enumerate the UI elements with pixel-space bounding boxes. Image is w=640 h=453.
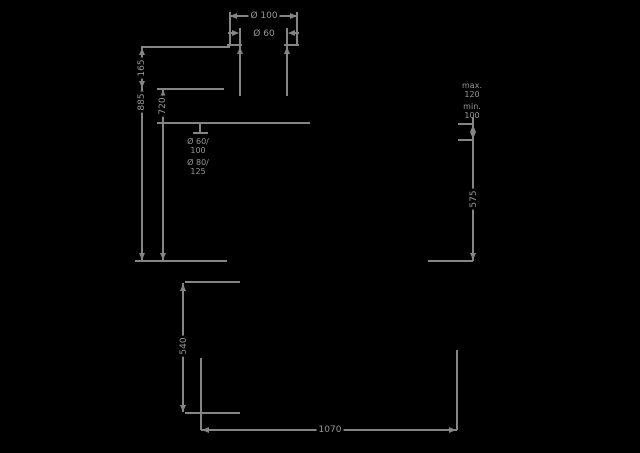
leader-bar-connection [193,132,208,134]
connection-label-line1: Ø 60/ [187,137,209,146]
arrow-left-icon [288,30,295,36]
connection-label-line2: 100 [187,146,209,155]
total-height-label: 885 [137,91,147,112]
arrow-right-icon [290,13,297,19]
width-label: 1070 [317,425,344,435]
ref-line-flue-top [141,46,230,48]
right-note-line2: 120 [462,90,482,99]
arrow-up-icon [180,284,186,291]
ref-line-body-top [157,88,224,90]
flue-inner-dim-tail-right [295,32,299,34]
flue-pipe-left [239,28,241,96]
clearance-label: 540 [179,335,189,356]
ext-line-width-left [200,358,202,430]
ext-line-clearance-top [185,281,240,283]
right-range-note: max. 120 min. 100 [462,81,482,120]
right-note-line3: min. [462,102,482,111]
connection-label: Ø 60/ 100 Ø 80/ 125 [187,137,209,176]
dim-line-left-total [141,47,143,261]
ref-line-connection-level [157,122,310,124]
right-note-line1: max. [462,81,482,90]
flue-pipe-right [286,28,288,96]
arrow-down-icon [160,253,166,260]
arrow-right-icon [449,427,456,433]
right-height-label: 575 [469,188,479,209]
connection-label-line3: Ø 80/ [187,158,209,167]
arrow-down-icon [470,132,476,139]
tick-right-lower [458,139,473,141]
flue-outer-dia-label: Ø 100 [248,11,279,21]
flue-inner-dia-label: Ø 60 [251,29,276,39]
arrow-up-icon [470,125,476,132]
arrow-down-icon [470,253,476,260]
arrow-left-icon [230,13,237,19]
arrow-down-icon [139,81,145,88]
arrow-up-icon [139,48,145,55]
ext-line-width-right [456,350,458,430]
arrow-down-icon [180,405,186,412]
collar-height-label: 165 [137,57,147,78]
ref-line-base-right [428,260,473,262]
ext-line-clearance-bottom [185,412,240,414]
arrow-up-icon [284,47,290,54]
arrow-up-icon [237,47,243,54]
connection-label-line4: 125 [187,167,209,176]
flue-collar-cap-right [284,44,299,46]
ref-line-base-left [135,260,227,262]
arrow-down-icon [139,253,145,260]
arrow-right-icon [232,30,239,36]
body-height-label: 720 [158,95,168,116]
arrow-left-icon [202,427,209,433]
dimension-drawing: Ø 100 Ø 60 165 885 720 Ø 60/ 100 Ø 80/ 1… [0,0,640,453]
